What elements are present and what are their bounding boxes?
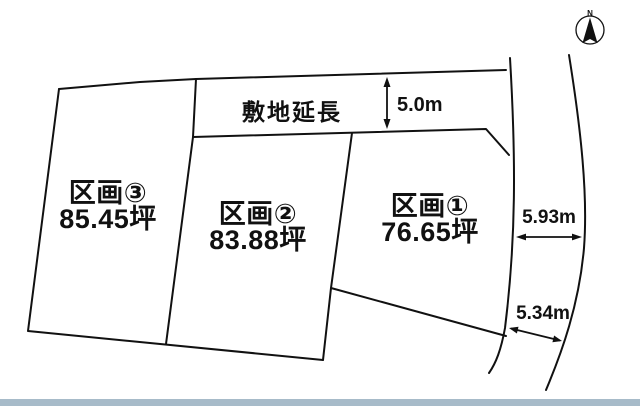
plot-1-label: 区画① 76.65坪 [381, 193, 479, 245]
plot-3-name: 区画③ [59, 180, 157, 206]
compass-icon: N [576, 9, 604, 44]
plot1-bottom-edge [331, 288, 506, 336]
dim-label-5-93m: 5.93m [522, 207, 576, 229]
site-extension-label: 敷地延長 [242, 93, 342, 127]
arrowhead-right-icon [572, 234, 582, 241]
compass-north-label: N [587, 9, 593, 18]
plot-2-name: 区画② [209, 201, 307, 227]
plot-2-area: 83.88坪 [209, 227, 307, 253]
parcel-top-edge [59, 70, 506, 89]
arrowhead-left-icon [516, 234, 526, 241]
dim-label-5-34m: 5.34m [516, 303, 570, 325]
plot-2-label: 区画② 83.88坪 [209, 201, 307, 253]
divider-plot2-plot1 [323, 133, 352, 360]
plot-1-name: 区画① [381, 193, 479, 219]
dim-label-5-0m: 5.0m [397, 94, 443, 117]
arrowhead-down-icon [384, 119, 391, 129]
divider-plot3-plot2 [166, 137, 193, 344]
land-plot-diagram: N 敷地延長 5.0m 区画③ 85.45坪 区画② 83.88坪 区画① 76… [0, 0, 640, 408]
arrowhead-left-slant-icon [509, 327, 519, 334]
dim-arrow-5-34m [511, 329, 560, 341]
plot-3-area: 85.45坪 [59, 206, 157, 232]
arrowhead-up-icon [384, 77, 391, 87]
site-extension-left-edge [193, 79, 196, 137]
footer-color-bar [0, 399, 640, 406]
road-left-line [489, 58, 514, 373]
plot-1-area: 76.65坪 [381, 219, 479, 245]
plot-3-label: 区画③ 85.45坪 [59, 180, 157, 232]
arrowhead-right-slant-icon [552, 336, 562, 343]
